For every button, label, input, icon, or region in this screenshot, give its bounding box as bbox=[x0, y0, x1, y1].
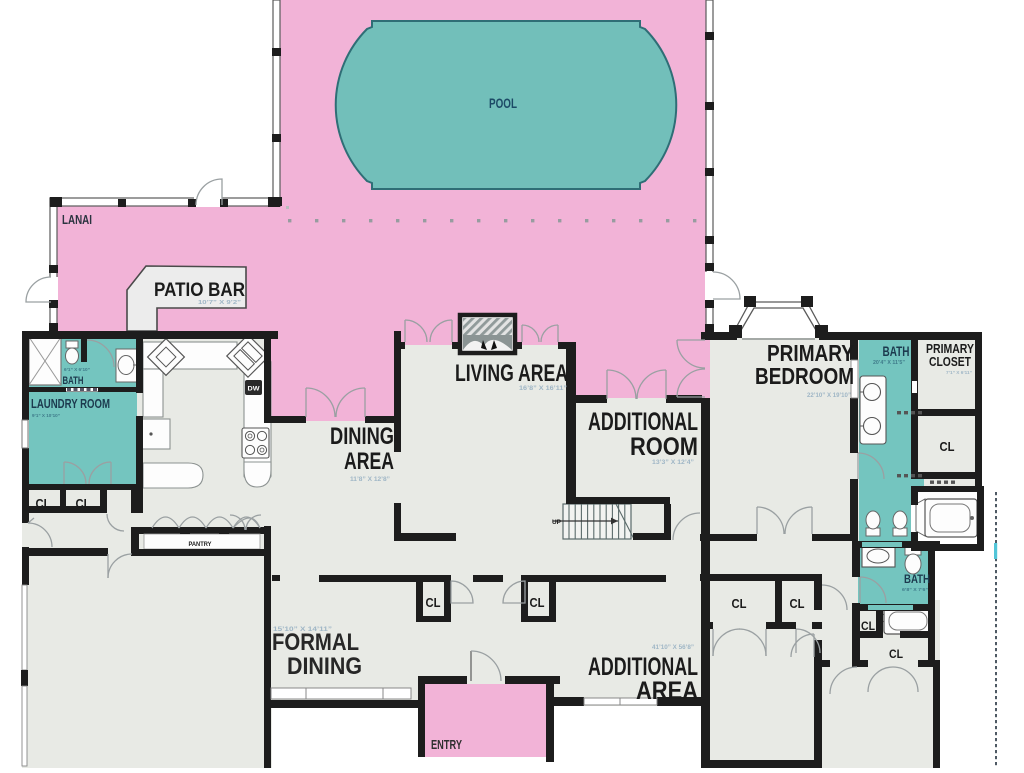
svg-text:CL: CL bbox=[790, 596, 805, 611]
svg-text:ADDITIONAL: ADDITIONAL bbox=[588, 408, 698, 436]
svg-text:DINING: DINING bbox=[330, 423, 394, 450]
svg-text:CL: CL bbox=[940, 439, 955, 454]
svg-text:CL: CL bbox=[530, 595, 545, 610]
svg-text:6’1” X 6’10”: 6’1” X 6’10” bbox=[64, 367, 90, 372]
svg-text:LANAI: LANAI bbox=[62, 213, 92, 227]
svg-text:LIVING AREA: LIVING AREA bbox=[455, 360, 568, 387]
svg-text:CL: CL bbox=[889, 647, 903, 661]
svg-text:ROOM: ROOM bbox=[630, 433, 698, 461]
svg-text:PATIO BAR: PATIO BAR bbox=[154, 280, 245, 301]
svg-text:FORMAL: FORMAL bbox=[272, 629, 359, 656]
svg-text:15’10” X 14’11”: 15’10” X 14’11” bbox=[273, 626, 332, 633]
svg-text:BATH: BATH bbox=[904, 572, 930, 586]
svg-text:BEDROOM: BEDROOM bbox=[755, 363, 854, 389]
svg-text:PANTRY: PANTRY bbox=[189, 541, 213, 548]
svg-text:10’7” X 9’2”: 10’7” X 9’2” bbox=[198, 300, 241, 306]
svg-text:6’8” X 7’6”: 6’8” X 7’6” bbox=[902, 587, 928, 592]
svg-text:41’10” X 56’8”: 41’10” X 56’8” bbox=[652, 645, 694, 651]
svg-text:CL: CL bbox=[732, 596, 747, 611]
svg-text:LAUNDRY ROOM: LAUNDRY ROOM bbox=[31, 396, 110, 411]
svg-text:CL: CL bbox=[861, 619, 875, 633]
svg-text:DINING: DINING bbox=[287, 653, 362, 680]
svg-text:BATH: BATH bbox=[883, 344, 910, 359]
svg-text:20’4” X 11’5”: 20’4” X 11’5” bbox=[873, 360, 906, 366]
svg-text:CL: CL bbox=[426, 595, 441, 610]
svg-text:BATH: BATH bbox=[63, 375, 84, 387]
svg-text:7’1” X 6’11”: 7’1” X 6’11” bbox=[946, 370, 972, 375]
svg-text:AREA: AREA bbox=[636, 677, 698, 705]
svg-text:13’3” X 12’4”: 13’3” X 12’4” bbox=[652, 460, 694, 466]
svg-text:CL: CL bbox=[76, 496, 91, 511]
svg-text:AREA: AREA bbox=[344, 448, 394, 475]
svg-text:16’8” X 16’11”: 16’8” X 16’11” bbox=[519, 386, 567, 392]
svg-text:11’8” X 12’8”: 11’8” X 12’8” bbox=[350, 477, 390, 483]
svg-text:ENTRY: ENTRY bbox=[431, 738, 462, 752]
svg-text:22’10” X 19’10”: 22’10” X 19’10” bbox=[807, 393, 851, 399]
svg-text:UP: UP bbox=[552, 519, 562, 526]
svg-text:DW: DW bbox=[248, 387, 260, 393]
svg-text:CL: CL bbox=[36, 496, 51, 511]
svg-text:POOL: POOL bbox=[489, 95, 517, 111]
svg-text:CLOSET: CLOSET bbox=[929, 354, 971, 369]
svg-text:9’1” X 10’10”: 9’1” X 10’10” bbox=[32, 413, 60, 418]
